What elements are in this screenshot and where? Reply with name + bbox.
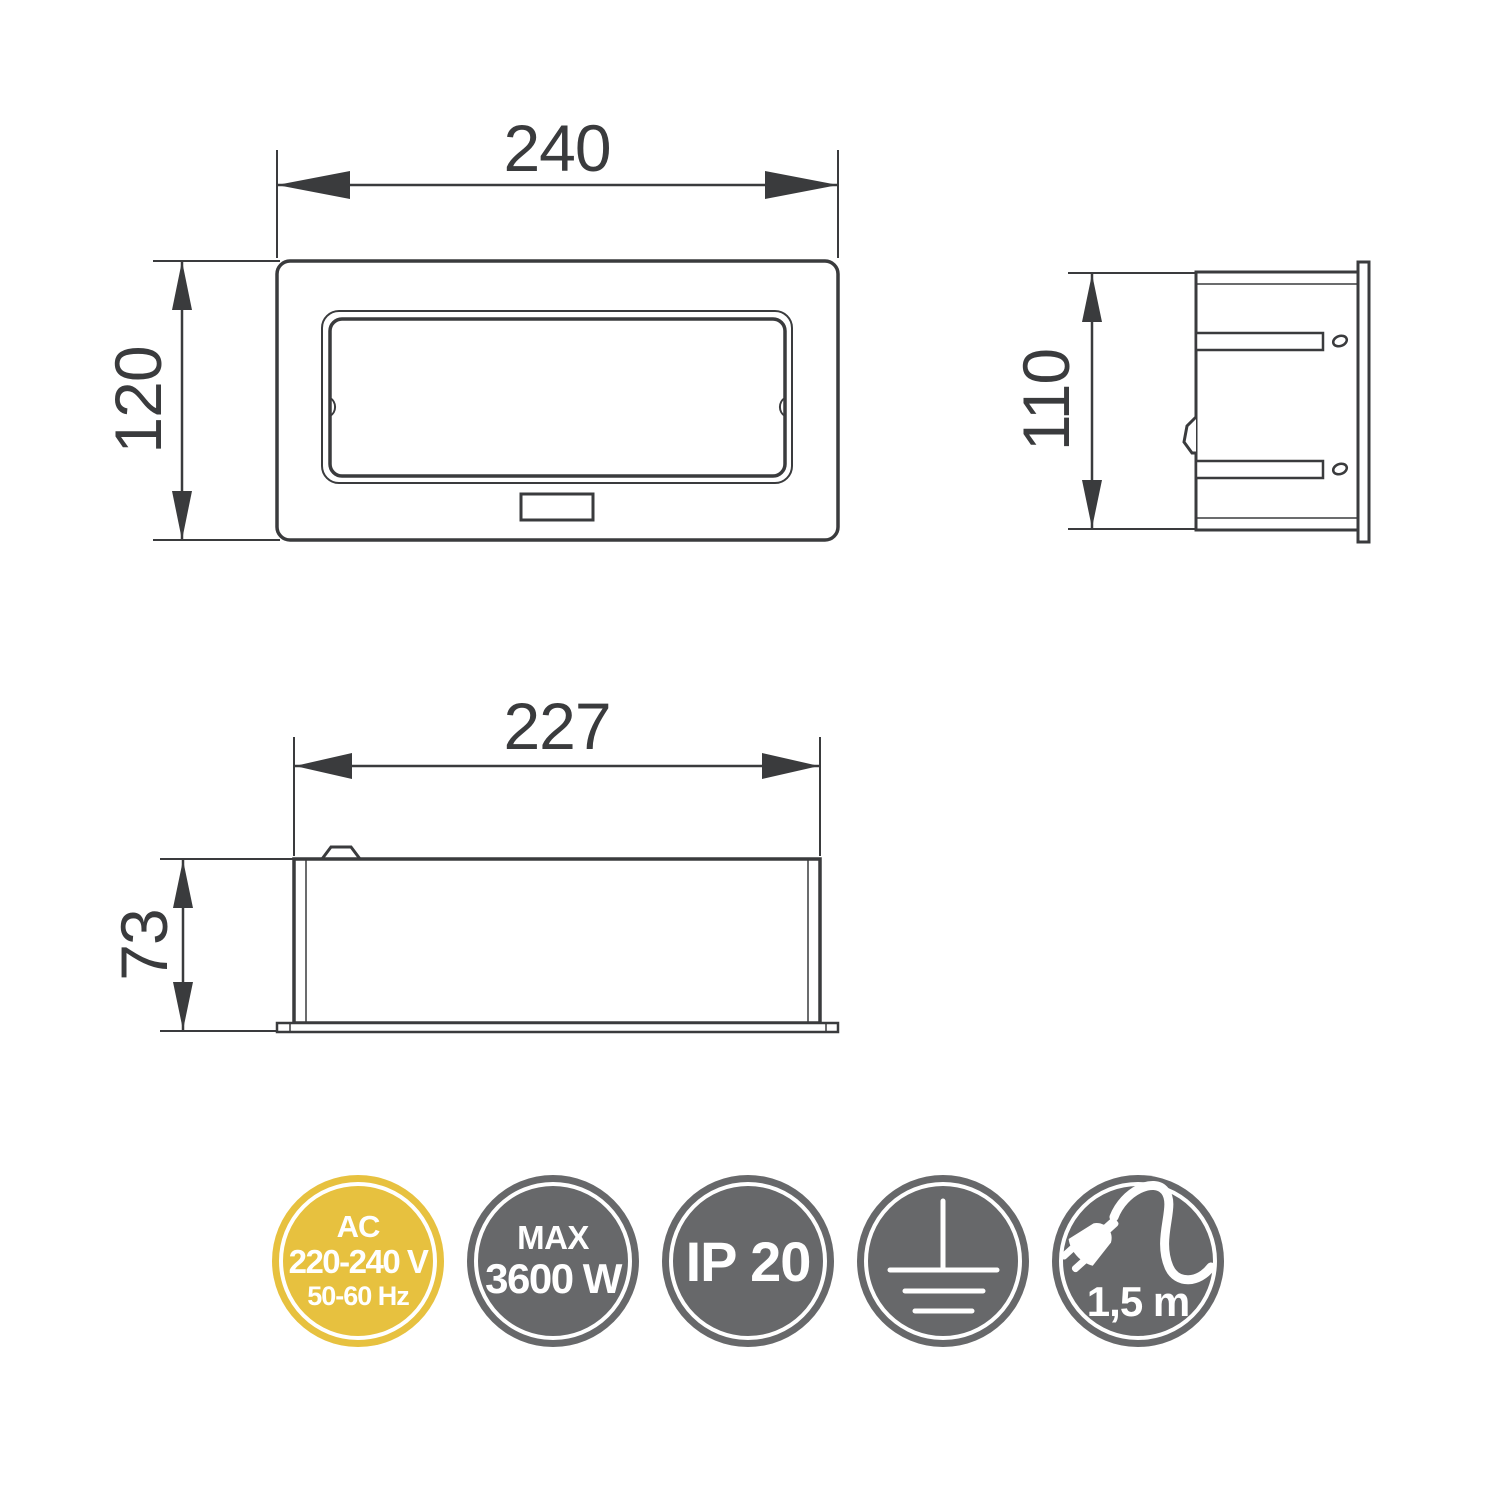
spec-badges-row: AC 220-240 V 50-60 Hz MAX 3600 W IP 20 [272,1175,1224,1347]
side-latch-bump [1184,417,1196,453]
front-width-label: 240 [503,111,610,185]
power-frequency-label: 50-60 Hz [307,1281,409,1312]
cable-length-label: 1,5 m [1052,1281,1224,1323]
front-height-label: 120 [101,346,175,453]
arrowhead-down-icon [172,491,192,540]
arrowhead-down-icon [173,982,193,1030]
front-height-dimension: 120 [101,261,280,540]
arrowhead-up-icon [1082,274,1102,322]
badge-cable-length: 1,5 m [1052,1175,1224,1347]
arrowhead-up-icon [172,261,192,310]
max-wattage-label: 3600 W [485,1256,621,1302]
profile-latch-bump [322,847,360,859]
profile-height-label: 73 [107,909,181,980]
front-width-dimension: 240 [277,111,838,258]
badge-power-rating: AC 220-240 V 50-60 Hz [272,1175,444,1347]
badge-ip-rating: IP 20 [662,1175,834,1347]
front-view: 240 120 [101,111,838,540]
front-push-button [521,494,593,520]
profile-bottom-flange [277,1023,838,1032]
power-voltage-label: 220-240 V [289,1244,428,1281]
profile-width-dimension: 227 [294,689,820,856]
arrowhead-right-icon [762,753,819,779]
badge-grounding [857,1175,1029,1347]
side-view: 110 [1009,262,1369,542]
technical-drawing-sheet: 240 120 [0,0,1500,1500]
grounding-icon [857,1175,1029,1347]
side-housing-body [1196,272,1358,530]
side-clamp-bar-lower [1196,461,1323,478]
arrowhead-right-icon [765,171,838,199]
side-height-label: 110 [1009,349,1083,451]
side-height-dimension: 110 [1009,273,1210,529]
profile-body [294,859,820,1023]
profile-width-label: 227 [503,689,610,763]
profile-view: 227 73 [107,689,838,1032]
arrowhead-left-icon [277,171,350,199]
side-flange [1358,262,1369,542]
ip-rating-label: IP 20 [686,1229,811,1294]
arrowhead-left-icon [295,753,352,779]
profile-height-dimension: 73 [107,859,296,1031]
power-ac-label: AC [337,1210,380,1245]
arrowhead-down-icon [1082,480,1102,528]
arrowhead-up-icon [173,860,193,908]
side-clamp-bar-upper [1196,333,1323,350]
dimension-drawing: 240 120 [0,0,1500,1120]
front-lid [330,319,785,476]
badge-max-load: MAX 3600 W [467,1175,639,1347]
max-label: MAX [517,1220,589,1256]
